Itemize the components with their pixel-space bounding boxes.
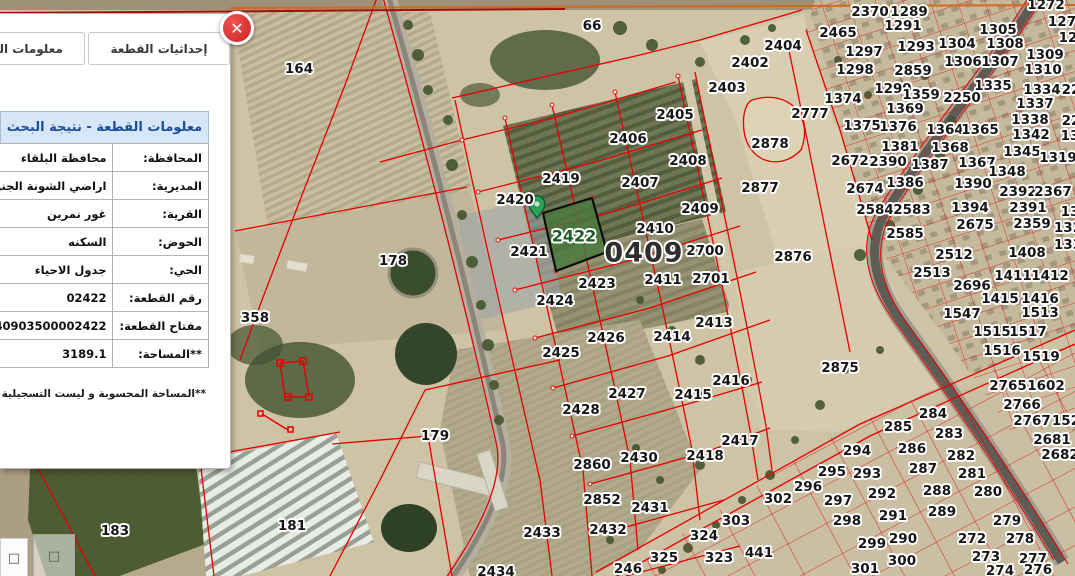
map-stage[interactable]: 0409 2422 661642404240224032405240624082… — [0, 0, 1075, 576]
row-value: غور نمرين — [0, 200, 113, 228]
map-control-button-2[interactable]: □ — [33, 534, 75, 576]
row-label: الحوض: — [113, 228, 209, 256]
table-row: المديرية:اراضي الشونة الجنوبية — [0, 172, 209, 200]
parcel-info-tbody: المحافظة:محافظة البلقاءالمديرية:اراضي ال… — [0, 144, 209, 368]
tab-parcel-coordinates-label: إحداثيات القطعة — [111, 42, 208, 56]
tab-parcel-coordinates[interactable]: إحداثيات القطعة — [88, 32, 230, 65]
table-row: **المساحة:3189.1 — [0, 340, 209, 368]
row-label: رقم القطعة: — [113, 284, 209, 312]
row-label: المحافظة: — [113, 144, 209, 172]
row-label: المديرية: — [113, 172, 209, 200]
table-row: رقم القطعة:02422 — [0, 284, 209, 312]
tab-parcel-info[interactable]: معلومات القطعة — [0, 32, 85, 65]
table-row: الحي:جدول الاحياء — [0, 256, 209, 284]
row-label: مفتاح القطعة: — [113, 312, 209, 340]
row-value: 3189.1 — [0, 340, 113, 368]
close-panel-button[interactable]: ✕ — [220, 11, 254, 45]
row-label: **المساحة: — [113, 340, 209, 368]
row-label: الحي: — [113, 256, 209, 284]
parcel-info-table: معلومات القطعة - نتيجة البحث المحافظة:مح… — [0, 111, 209, 368]
table-title: معلومات القطعة - نتيجة البحث — [0, 111, 209, 143]
parcel-info-panel: معلومات القطعة إحداثيات القطعة معلومات ا… — [0, 13, 231, 469]
row-value: 02422 — [0, 284, 113, 312]
row-value: اراضي الشونة الجنوبية — [0, 172, 113, 200]
map-control-glyph-2: □ — [48, 549, 60, 564]
row-value: جدول الاحياء — [0, 256, 113, 284]
row-value: السكنه — [0, 228, 113, 256]
close-icon: ✕ — [230, 19, 243, 38]
row-value: 40903500002422 — [0, 312, 113, 340]
table-row: القرية:غور نمرين — [0, 200, 209, 228]
row-value: محافظة البلقاء — [0, 144, 113, 172]
map-control-button-1[interactable]: □ — [0, 538, 28, 576]
tab-parcel-info-label: معلومات القطعة — [0, 42, 63, 56]
row-label: القرية: — [113, 200, 209, 228]
table-row: المحافظة:محافظة البلقاء — [0, 144, 209, 172]
table-row: الحوض:السكنه — [0, 228, 209, 256]
table-row: مفتاح القطعة:40903500002422 — [0, 312, 209, 340]
map-control-glyph-1: □ — [8, 551, 20, 566]
area-footnote: **المساحة المحسوبة و ليست التسجيلية — [2, 388, 206, 400]
